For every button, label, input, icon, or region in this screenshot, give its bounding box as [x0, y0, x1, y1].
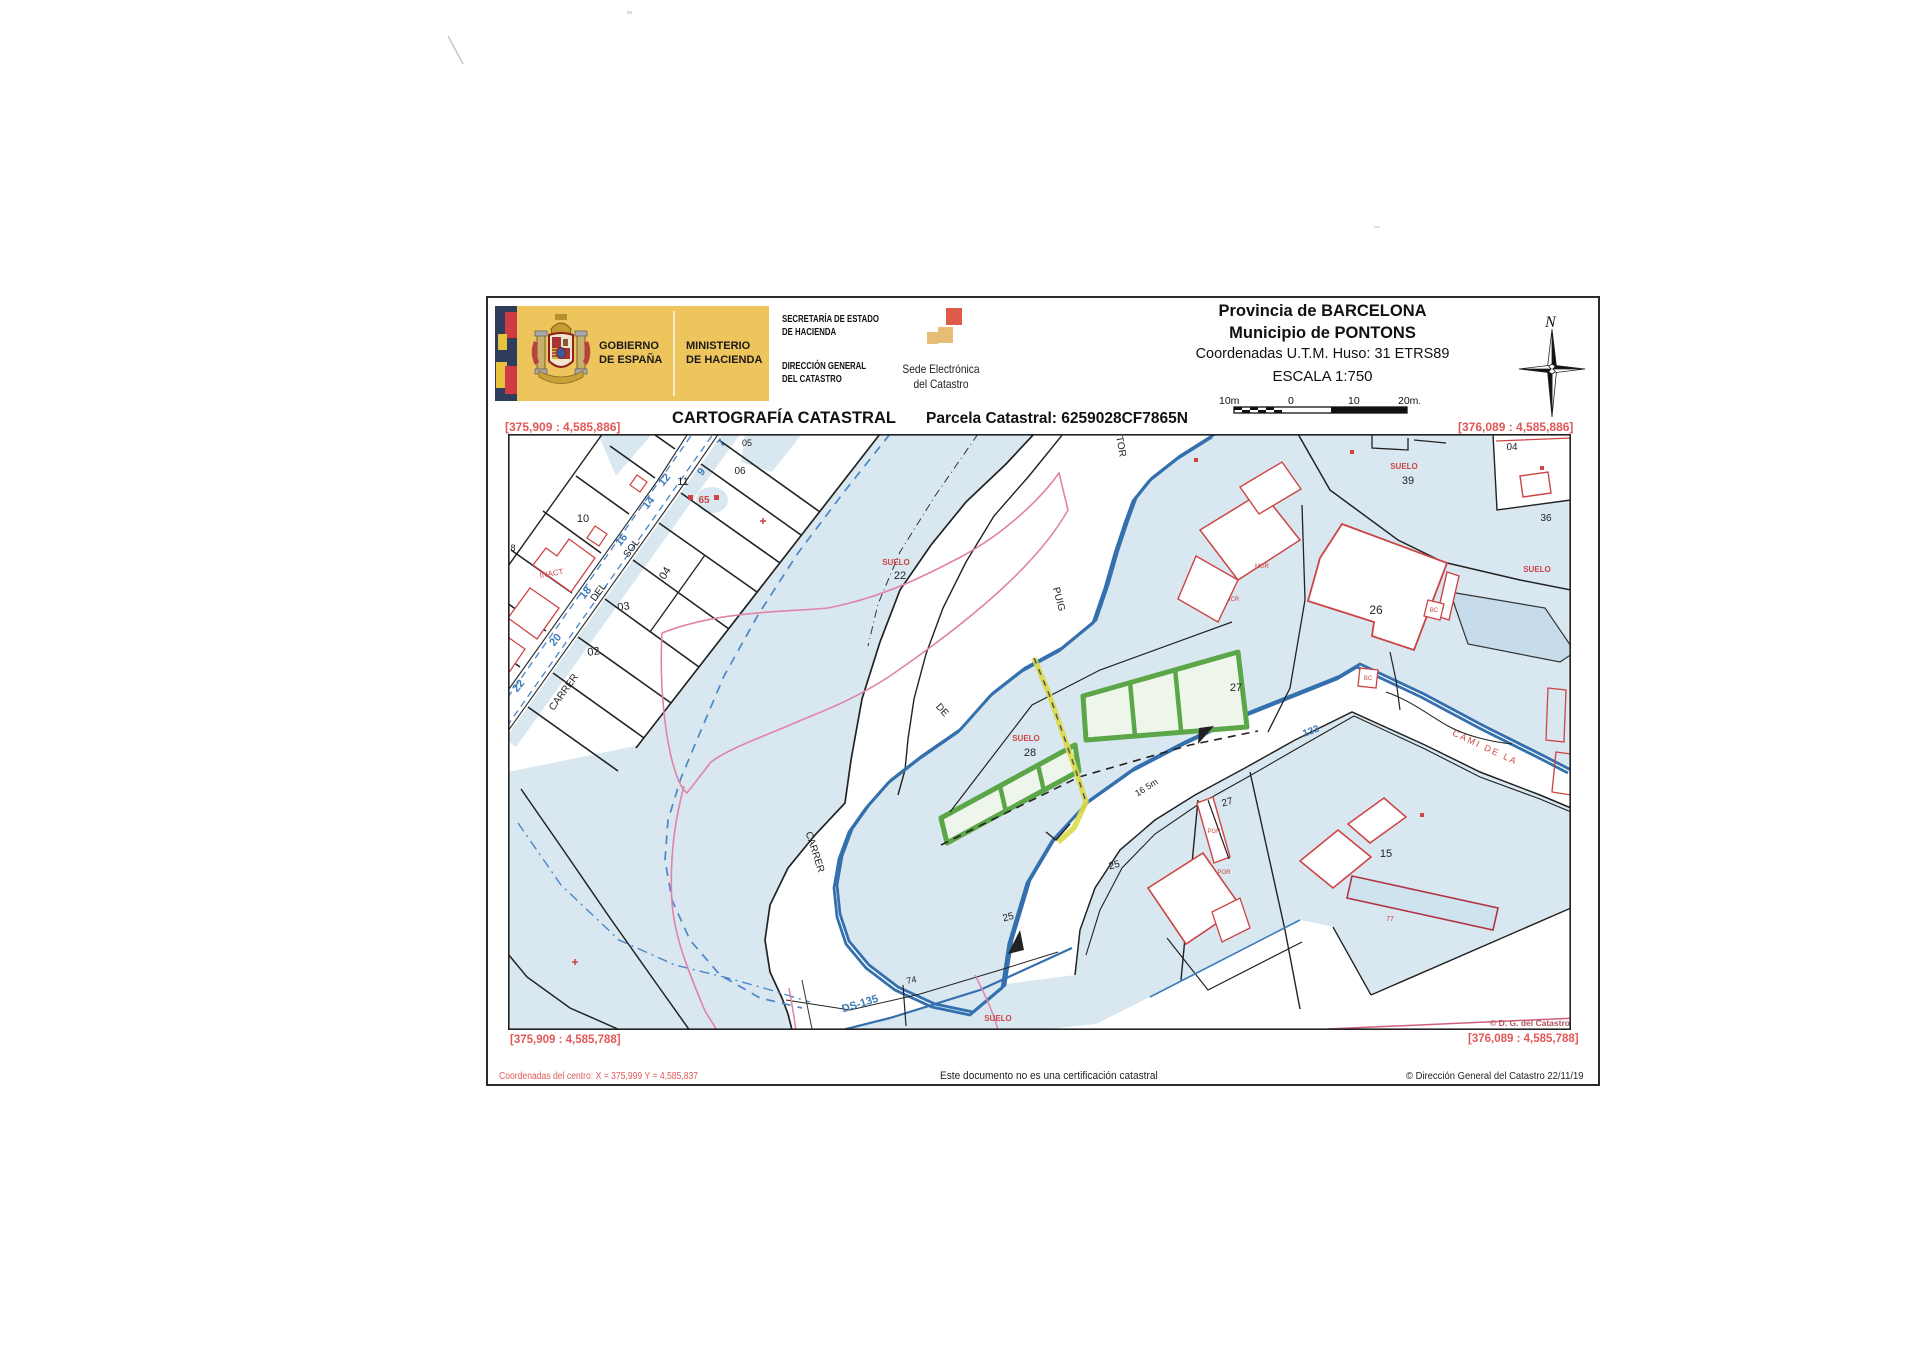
svg-text:26: 26: [1369, 603, 1383, 617]
svg-text:SUELO: SUELO: [1012, 734, 1040, 743]
svg-text:0: 0: [1288, 395, 1294, 407]
svg-text:05: 05: [742, 438, 752, 448]
svg-text:SUELO: SUELO: [1390, 462, 1418, 471]
svg-text:10: 10: [1348, 395, 1360, 407]
svg-text:POR: POR: [1217, 870, 1231, 876]
svg-text:39: 39: [1402, 475, 1414, 487]
svg-text:27: 27: [1230, 682, 1242, 694]
svg-text:BC: BC: [1364, 676, 1373, 682]
svg-text:ICR: ICR: [1229, 597, 1240, 603]
svg-text:PGR: PGR: [1207, 829, 1221, 835]
svg-text:20m.: 20m.: [1398, 395, 1420, 407]
svg-text:15: 15: [1380, 848, 1392, 860]
svg-text:77: 77: [1386, 916, 1394, 923]
svg-text:10: 10: [577, 513, 589, 525]
svg-text:MGR: MGR: [1255, 564, 1270, 570]
svg-text:BC: BC: [1430, 608, 1439, 614]
svg-text:SUELO: SUELO: [984, 1014, 1012, 1023]
svg-text:74: 74: [905, 974, 917, 986]
svg-text:04: 04: [1506, 442, 1518, 453]
svg-text:10m: 10m: [1219, 395, 1240, 407]
svg-text:65: 65: [698, 495, 710, 506]
svg-text:36: 36: [1540, 513, 1552, 524]
svg-text:28: 28: [1024, 747, 1036, 759]
svg-text:8: 8: [510, 543, 515, 553]
svg-text:03: 03: [617, 600, 631, 614]
svg-text:N: N: [1544, 314, 1557, 331]
svg-text:SUELO: SUELO: [882, 558, 910, 567]
svg-text:SUELO: SUELO: [1523, 565, 1551, 574]
svg-text:06: 06: [734, 466, 746, 477]
svg-text:11: 11: [677, 476, 688, 488]
svg-text:22: 22: [894, 570, 906, 582]
svg-text:© D. G. del Catastro: © D. G. del Catastro: [1490, 1018, 1570, 1028]
svg-text:02: 02: [587, 645, 601, 659]
